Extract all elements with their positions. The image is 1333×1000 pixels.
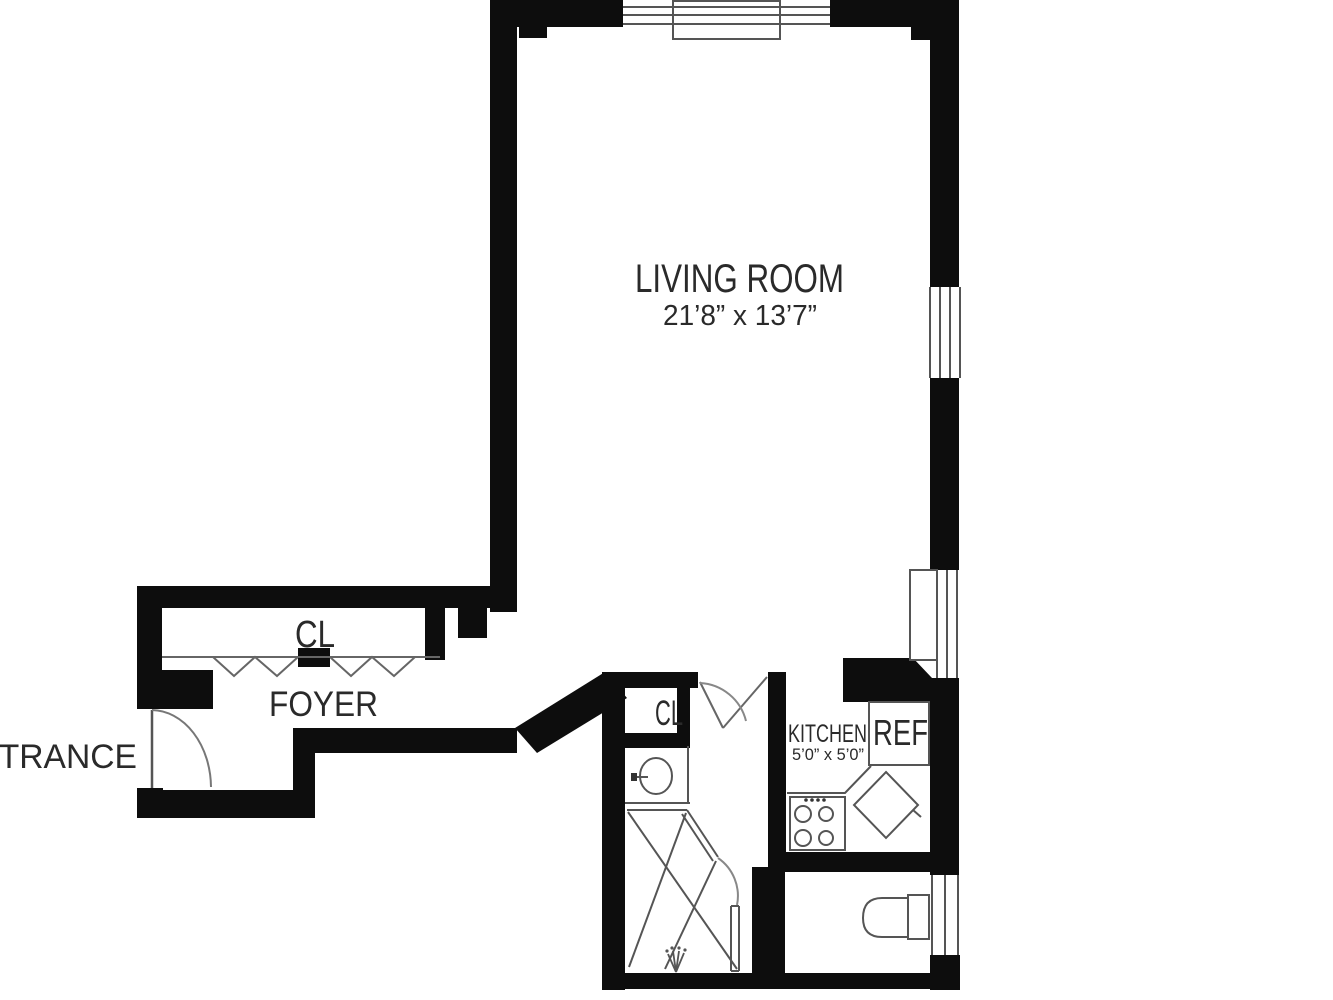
wall-right-mid: [930, 378, 959, 570]
wall-entrance-header: [137, 670, 213, 709]
wall-closet-jamb-b: [458, 608, 487, 638]
floor-plan: LIVING ROOM 21’8” x 13’7” CL FOYER ENTRA…: [0, 0, 1333, 1000]
wall-top-left-notch: [519, 27, 547, 38]
entrance-label: ENTRANCE: [0, 738, 137, 776]
bath-closet-label: CL: [655, 694, 683, 733]
kitchen-dimensions: 5’0” x 5’0”: [792, 746, 864, 764]
entrance-door-icon: [152, 710, 211, 788]
wall-kitchen-bottom: [768, 852, 932, 872]
wall-foyer-bottom-low: [137, 790, 315, 818]
window-right-lower: [932, 875, 958, 955]
living-room-label: LIVING ROOM: [635, 257, 844, 301]
wall-bath-closet-bottom: [602, 733, 690, 748]
interior-door-icon: [700, 677, 767, 728]
radiator-box-right: [910, 570, 937, 660]
wall-right-lower: [930, 678, 959, 875]
walls: [137, 0, 960, 990]
living-room-dimensions: 21’8” x 13’7”: [663, 300, 817, 332]
wall-top-right-notch: [911, 27, 930, 40]
wall-bath-closet-top: [602, 672, 698, 688]
wall-kitchen-top: [843, 658, 932, 702]
bathroom-sink-icon: [625, 746, 690, 803]
stove-icon: [790, 797, 845, 850]
wall-foyer-top: [137, 586, 492, 608]
foyer-label: FOYER: [269, 685, 378, 724]
window-top: [623, 1, 830, 39]
shower-door-icon: [718, 858, 739, 971]
wall-right-upper: [930, 0, 959, 287]
wall-living-left: [490, 0, 517, 612]
wall-foyer-bottom-high: [315, 728, 517, 753]
wall-closet-jamb-a: [425, 608, 445, 660]
wall-kitchen-left: [768, 672, 786, 868]
kitchen-sink-icon: [854, 772, 921, 838]
toilet-icon: [863, 895, 929, 939]
refrigerator-label: REF: [873, 712, 928, 753]
wall-bath-left: [602, 672, 625, 990]
wall-bath-right-block: [752, 867, 785, 977]
wall-foyer-bottom-riser: [293, 728, 315, 818]
kitchen-counter-edge: [787, 766, 871, 793]
window-right-upper: [930, 287, 960, 378]
foyer-closet-label: CL: [295, 614, 335, 656]
window-right-middle: [910, 570, 957, 678]
bathtub-icon: [627, 810, 737, 969]
kitchen-label: KITCHEN: [788, 720, 867, 748]
